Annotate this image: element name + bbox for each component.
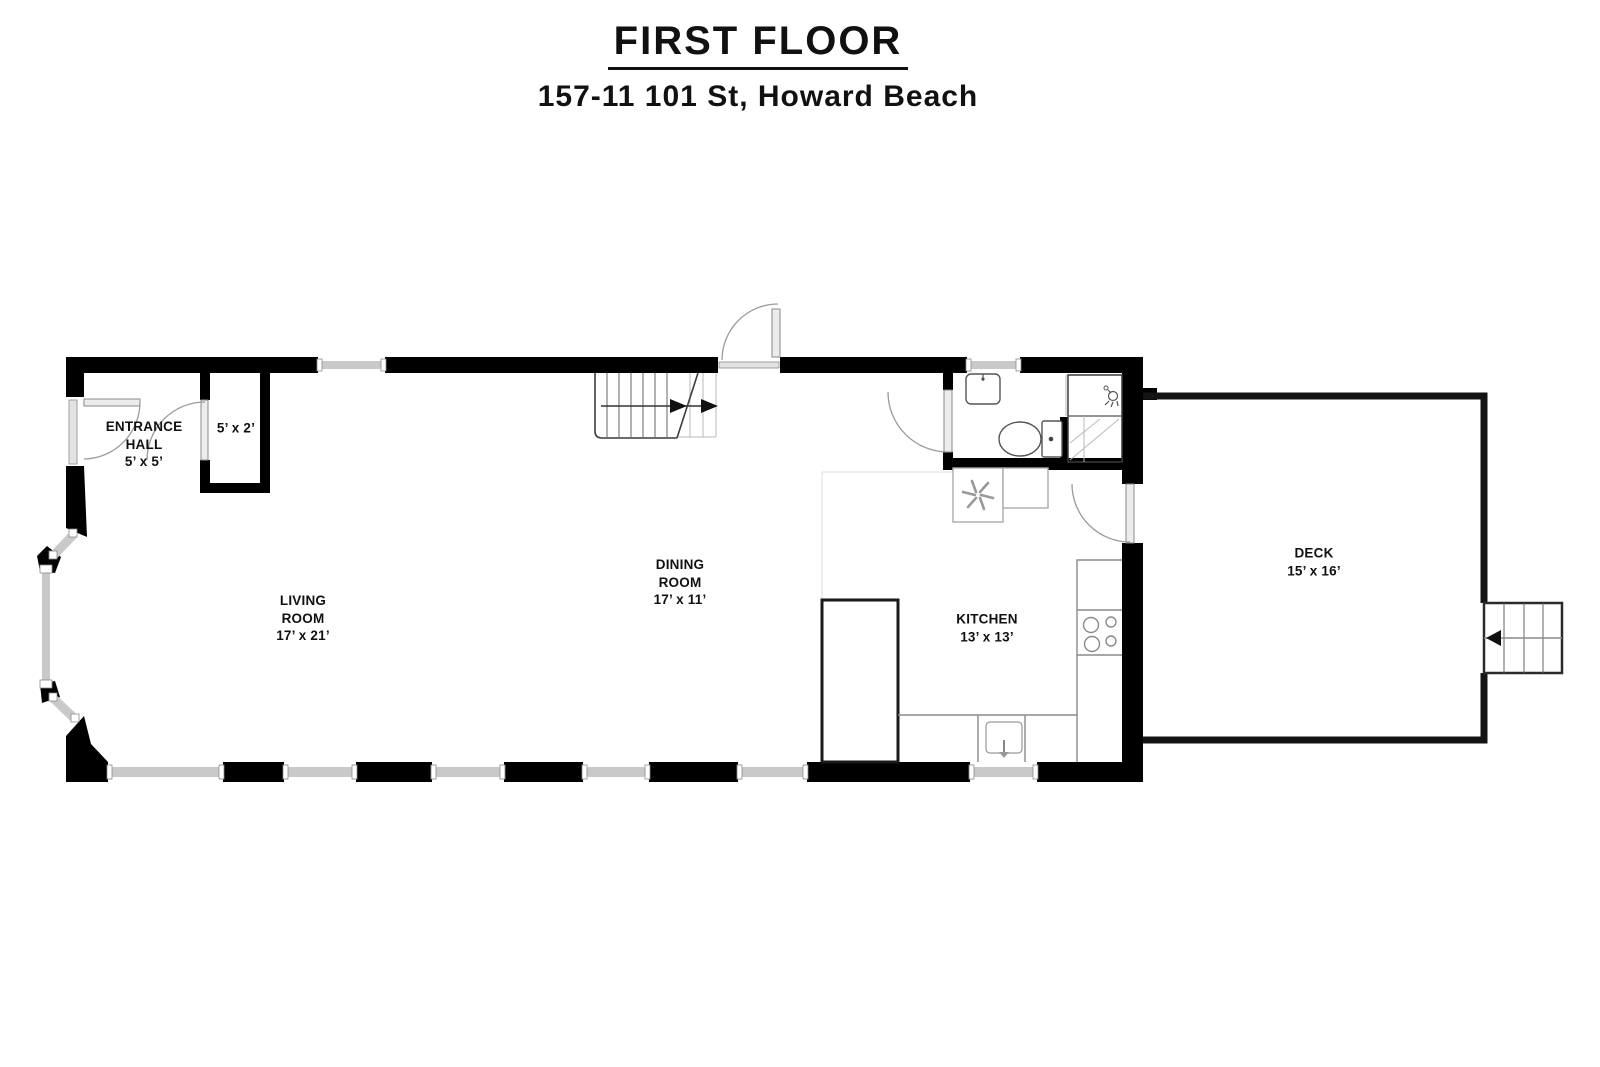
deck-door-leaf xyxy=(1126,484,1134,543)
floor-plan-drawing xyxy=(0,0,1600,1067)
kitchen-cabinet xyxy=(1003,468,1048,508)
toilet-bowl xyxy=(999,422,1041,456)
stove xyxy=(1077,610,1122,655)
burner-icon xyxy=(1106,617,1116,627)
room-label-entrance-hall: ENTRANCE HALL 5’ x 5’ xyxy=(106,418,183,471)
rear-door-leaf xyxy=(772,309,780,357)
room-label-closet: 5’ x 2’ xyxy=(217,419,255,437)
shower-stall xyxy=(1066,375,1122,462)
room-label-dining-room: DINING ROOM 17’ x 11’ xyxy=(654,556,707,609)
closet-door-leaf xyxy=(201,400,208,460)
burner-icon xyxy=(1085,637,1100,652)
front-door-leaf xyxy=(84,399,140,406)
interior-staircase xyxy=(595,373,718,438)
stair-direction-arrow xyxy=(701,399,718,413)
deck-door-swing-arc xyxy=(1072,484,1130,542)
fan-table xyxy=(953,468,1003,522)
front-door-sill xyxy=(69,400,77,464)
rear-door-sill xyxy=(719,362,779,368)
burner-icon xyxy=(1084,618,1099,633)
rear-door-swing-arc xyxy=(722,304,778,360)
room-label-deck: DECK 15’ x 16’ xyxy=(1287,545,1341,580)
room-label-kitchen: KITCHEN 13’ x 13’ xyxy=(956,611,1017,646)
stair-direction-arrow xyxy=(670,399,687,413)
shower-head-icon xyxy=(1109,392,1118,401)
burner-icon xyxy=(1106,636,1116,646)
kitchen-island xyxy=(822,600,898,762)
floor-plan-page: FIRST FLOOR 157-11 101 St, Howard Beach xyxy=(0,0,1600,1067)
room-label-living-room: LIVING ROOM 17’ x 21’ xyxy=(276,592,330,645)
kitchen-boundary-line xyxy=(822,472,953,600)
bathroom-door-swing-arc xyxy=(888,392,948,452)
bathroom-door-leaf xyxy=(944,390,952,452)
deck-staircase xyxy=(1484,603,1562,673)
bathroom-fixtures xyxy=(966,374,1122,462)
